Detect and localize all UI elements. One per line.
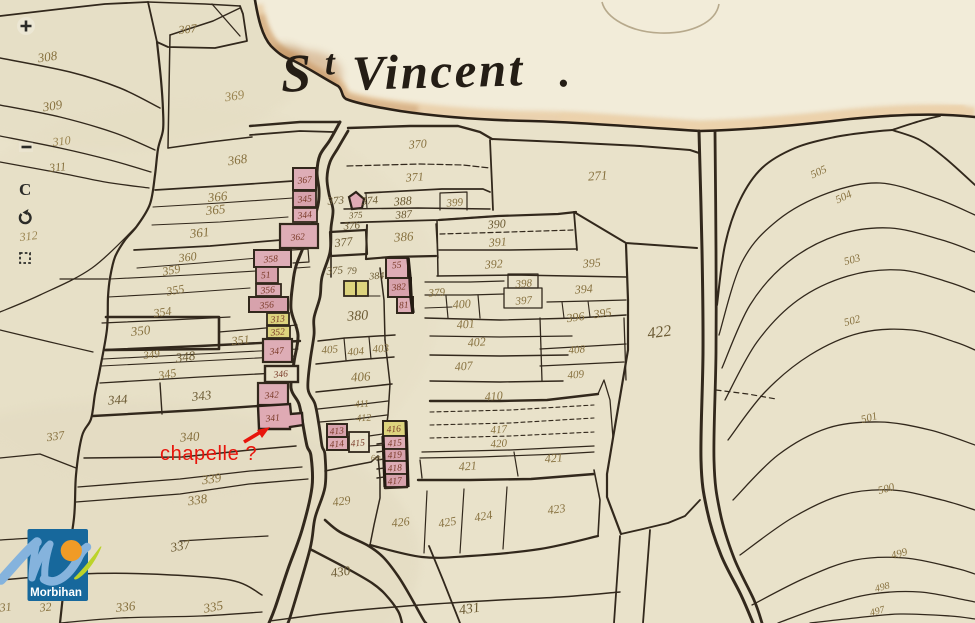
- svg-text:356: 356: [258, 300, 274, 311]
- svg-text:414: 414: [329, 439, 344, 450]
- svg-text:394: 394: [573, 281, 593, 296]
- svg-text:55: 55: [392, 261, 403, 272]
- svg-text:386: 386: [392, 228, 414, 244]
- svg-text:410: 410: [484, 388, 503, 403]
- svg-text:32: 32: [38, 599, 52, 614]
- svg-text:392: 392: [483, 256, 503, 271]
- svg-text:341: 341: [264, 413, 280, 424]
- svg-text:348: 348: [174, 348, 197, 366]
- svg-text:380: 380: [346, 308, 369, 324]
- svg-text:337: 337: [45, 428, 67, 445]
- svg-text:399: 399: [445, 196, 464, 209]
- svg-text:313: 313: [269, 314, 285, 325]
- svg-text:367: 367: [296, 175, 313, 186]
- svg-text:79: 79: [346, 266, 357, 278]
- svg-text:421: 421: [458, 458, 477, 473]
- svg-text:387: 387: [394, 208, 413, 221]
- svg-text:400: 400: [452, 296, 471, 311]
- svg-text:405: 405: [321, 343, 339, 356]
- svg-text:419: 419: [387, 450, 402, 461]
- svg-text:418: 418: [387, 463, 402, 474]
- svg-text:311: 311: [47, 159, 66, 175]
- svg-text:395: 395: [581, 255, 601, 270]
- svg-text:390: 390: [486, 216, 506, 231]
- svg-text:310: 310: [51, 133, 71, 149]
- svg-text:360: 360: [177, 249, 197, 265]
- svg-text:362: 362: [289, 232, 305, 243]
- svg-text:370: 370: [407, 136, 427, 151]
- svg-text:396: 396: [565, 309, 586, 326]
- svg-text:6m: 6m: [371, 453, 382, 463]
- svg-text:352: 352: [269, 327, 285, 338]
- svg-text:421: 421: [544, 450, 563, 465]
- svg-text:361: 361: [188, 224, 210, 241]
- svg-text:391: 391: [487, 234, 507, 249]
- svg-text:354: 354: [152, 304, 173, 321]
- svg-text:407: 407: [454, 358, 474, 373]
- svg-text:382: 382: [390, 282, 406, 293]
- svg-text:376: 376: [342, 219, 361, 232]
- svg-text:375: 375: [325, 264, 344, 277]
- svg-text:429: 429: [332, 493, 352, 509]
- svg-text:350: 350: [129, 322, 151, 339]
- svg-text:339: 339: [200, 470, 223, 488]
- svg-text:371: 371: [404, 169, 424, 184]
- svg-text:356: 356: [259, 285, 275, 296]
- svg-text:398: 398: [514, 277, 533, 290]
- svg-text:403: 403: [372, 342, 390, 355]
- svg-text:308: 308: [36, 48, 59, 66]
- svg-text:346: 346: [272, 369, 288, 380]
- svg-text:358: 358: [262, 254, 278, 265]
- svg-text:417: 417: [387, 476, 403, 487]
- svg-text:349: 349: [142, 348, 161, 362]
- svg-text:369: 369: [223, 87, 246, 105]
- svg-text:377: 377: [333, 234, 354, 250]
- svg-text:388: 388: [392, 193, 412, 208]
- svg-text:415: 415: [387, 438, 402, 449]
- svg-text:409: 409: [567, 368, 585, 381]
- svg-text:chapelle ?: chapelle ?: [160, 443, 257, 465]
- svg-text:Vincent: Vincent: [351, 41, 525, 101]
- svg-text:402: 402: [467, 334, 486, 349]
- svg-text:406: 406: [350, 368, 371, 384]
- svg-text:Morbihan: Morbihan: [30, 587, 82, 599]
- svg-text:395: 395: [592, 305, 613, 322]
- svg-text:307: 307: [177, 21, 198, 37]
- svg-text:345: 345: [296, 194, 312, 205]
- svg-text:422: 422: [646, 322, 672, 342]
- svg-text:423: 423: [547, 501, 567, 517]
- svg-text:431: 431: [458, 601, 481, 619]
- svg-text:413: 413: [329, 426, 344, 437]
- svg-text:344: 344: [106, 391, 128, 407]
- svg-text:336: 336: [114, 598, 136, 615]
- svg-text:368: 368: [226, 151, 249, 169]
- svg-text:416: 416: [386, 424, 401, 435]
- svg-text:426: 426: [391, 514, 410, 530]
- svg-text:271: 271: [587, 167, 607, 183]
- svg-text:415: 415: [350, 438, 365, 449]
- svg-text:344: 344: [296, 210, 312, 221]
- svg-text:374: 374: [360, 194, 379, 207]
- svg-text:S: S: [280, 43, 312, 104]
- svg-text:417: 417: [490, 423, 508, 436]
- svg-text:C: C: [19, 180, 31, 199]
- svg-text:397: 397: [514, 294, 533, 307]
- svg-text:343: 343: [190, 387, 212, 404]
- svg-text:404: 404: [347, 345, 365, 358]
- svg-text:412: 412: [356, 412, 372, 424]
- svg-text:51: 51: [261, 271, 271, 282]
- svg-text:31: 31: [0, 599, 12, 614]
- svg-text:430: 430: [330, 563, 352, 581]
- svg-text:373: 373: [326, 194, 345, 207]
- svg-text:408: 408: [568, 343, 586, 356]
- svg-text:365: 365: [204, 201, 226, 218]
- svg-text:401: 401: [456, 316, 475, 331]
- svg-text:379: 379: [427, 286, 446, 299]
- svg-text:342: 342: [263, 390, 279, 401]
- svg-text:420: 420: [490, 437, 508, 450]
- svg-text:338: 338: [186, 491, 209, 509]
- svg-text:411: 411: [354, 399, 369, 411]
- svg-text:347: 347: [268, 346, 285, 357]
- svg-text:309: 309: [41, 97, 64, 115]
- svg-text:312: 312: [18, 228, 38, 244]
- svg-text:384: 384: [368, 270, 385, 282]
- svg-text:351: 351: [230, 332, 250, 348]
- svg-text:81: 81: [399, 301, 409, 312]
